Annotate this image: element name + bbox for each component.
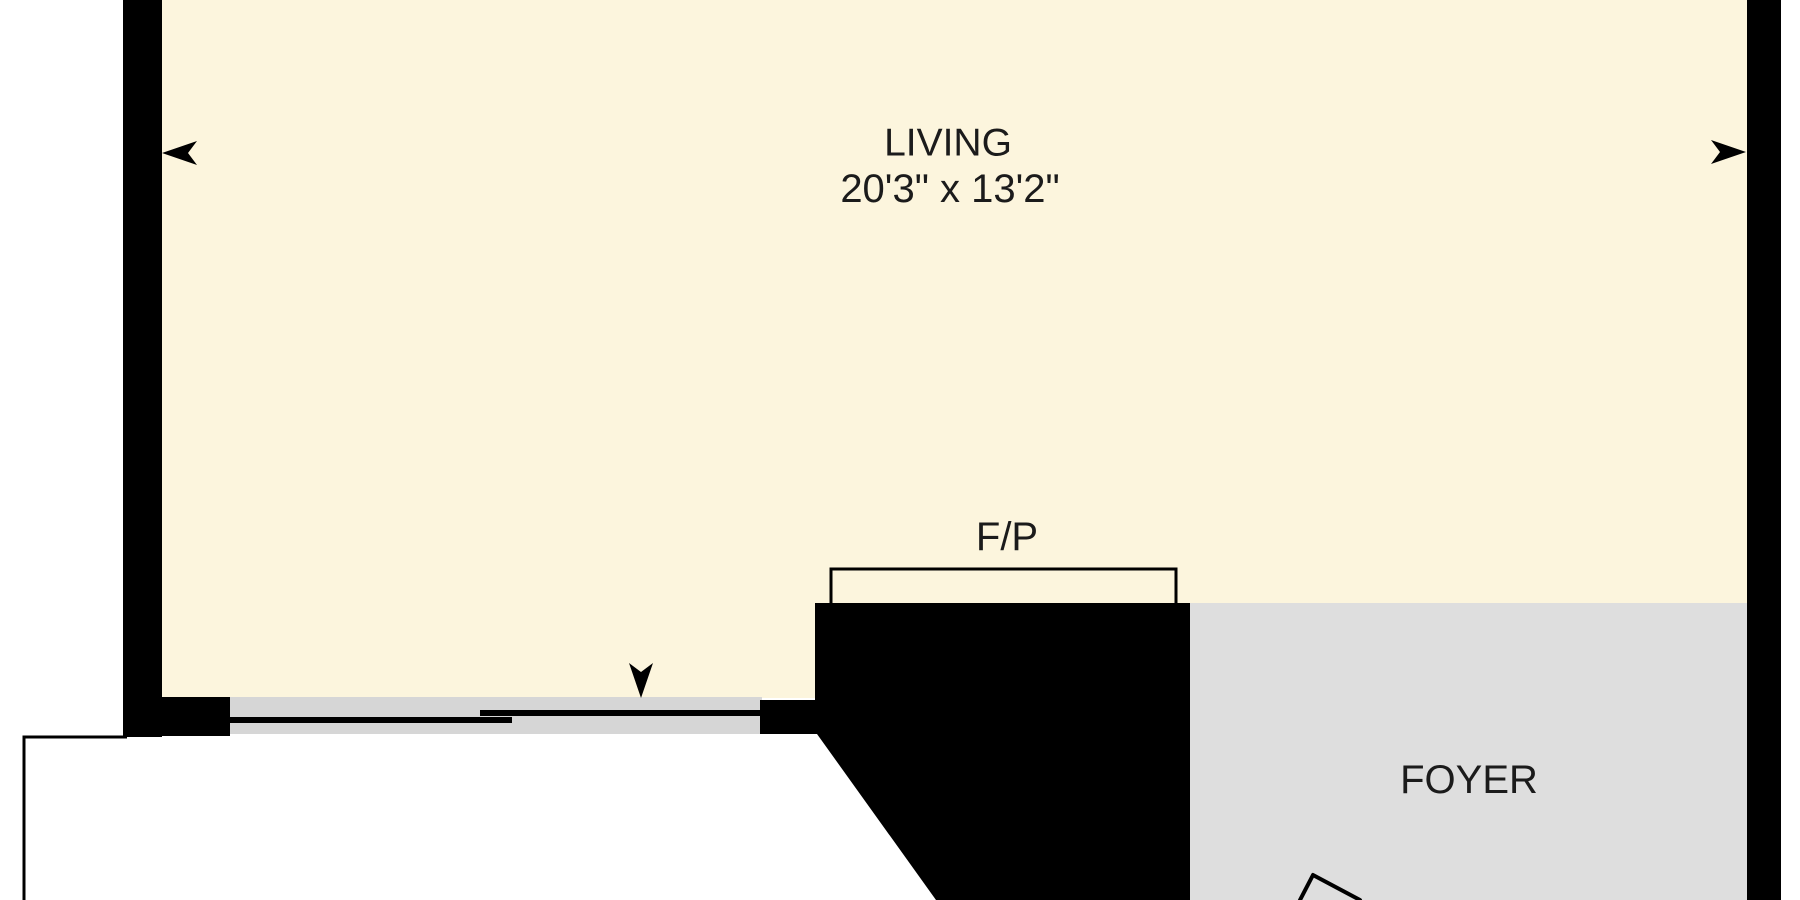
foyer-floor	[1190, 603, 1747, 900]
wall-left	[123, 0, 162, 737]
fireplace-label: F/P	[976, 514, 1038, 560]
fireplace-mass	[815, 603, 1190, 900]
sliding-door-leaf-left	[230, 717, 512, 723]
wall-fireplace-block	[760, 700, 817, 734]
fireplace-hearth	[831, 569, 1176, 606]
wall-right	[1747, 0, 1781, 900]
deck-outline	[24, 737, 127, 900]
floor-plan: LIVING 20'3" x 13'2" F/P FOYER	[0, 0, 1800, 900]
sliding-door-leaf-right	[480, 710, 762, 716]
foyer-label: FOYER	[1400, 757, 1538, 803]
living-room-dimensions: 20'3" x 13'2"	[840, 166, 1059, 212]
wall-bottom-segment	[123, 697, 230, 736]
living-room-label: LIVING	[884, 122, 1012, 167]
